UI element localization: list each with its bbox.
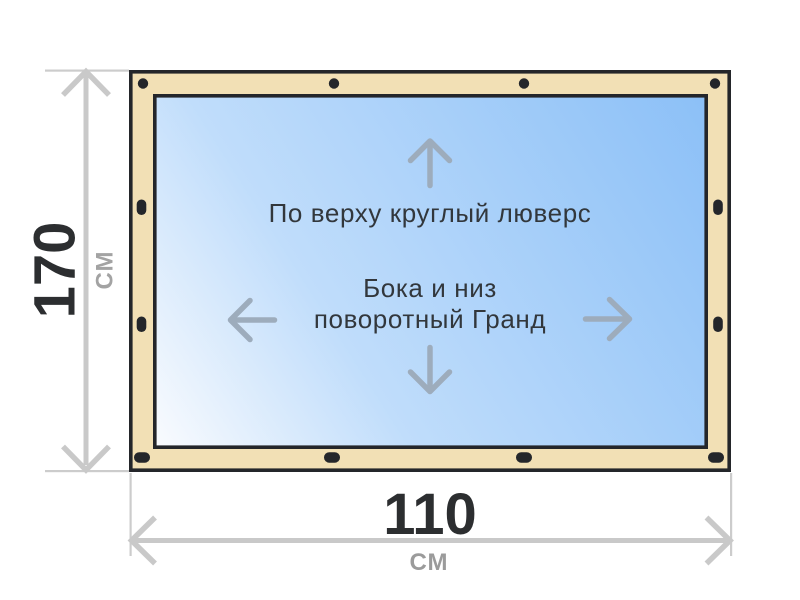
svg-text:110: 110 — [383, 482, 477, 547]
svg-text:поворотный Гранд: поворотный Гранд — [314, 304, 546, 334]
svg-text:СМ: СМ — [409, 549, 448, 576]
svg-text:По верху круглый люверс: По верху круглый люверс — [269, 198, 592, 228]
svg-text:170: 170 — [23, 222, 88, 319]
svg-text:Бока и низ: Бока и низ — [363, 273, 497, 303]
svg-text:СМ: СМ — [92, 250, 119, 289]
